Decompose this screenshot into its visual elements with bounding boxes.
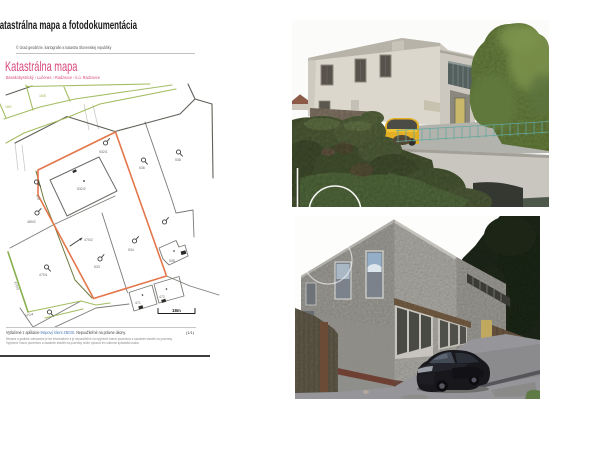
- svg-text:16/5: 16/5: [39, 94, 46, 98]
- svg-text:535: 535: [169, 259, 175, 263]
- svg-text:532/1: 532/1: [99, 150, 108, 154]
- svg-text:18/1: 18/1: [5, 105, 12, 109]
- svg-text:472: 472: [159, 295, 165, 299]
- svg-text:536: 536: [139, 166, 145, 170]
- svg-text:489/2: 489/2: [27, 220, 36, 224]
- svg-text:471: 471: [135, 301, 141, 305]
- svg-text:534: 534: [128, 248, 134, 252]
- svg-text:538: 538: [175, 158, 181, 162]
- svg-text:18m: 18m: [172, 308, 181, 313]
- svg-text:470/4: 470/4: [24, 312, 33, 318]
- svg-text:533: 533: [94, 265, 100, 269]
- svg-text:470/2: 470/2: [84, 238, 93, 242]
- svg-text:532/2: 532/2: [77, 187, 86, 191]
- svg-text:470/1: 470/1: [39, 273, 48, 277]
